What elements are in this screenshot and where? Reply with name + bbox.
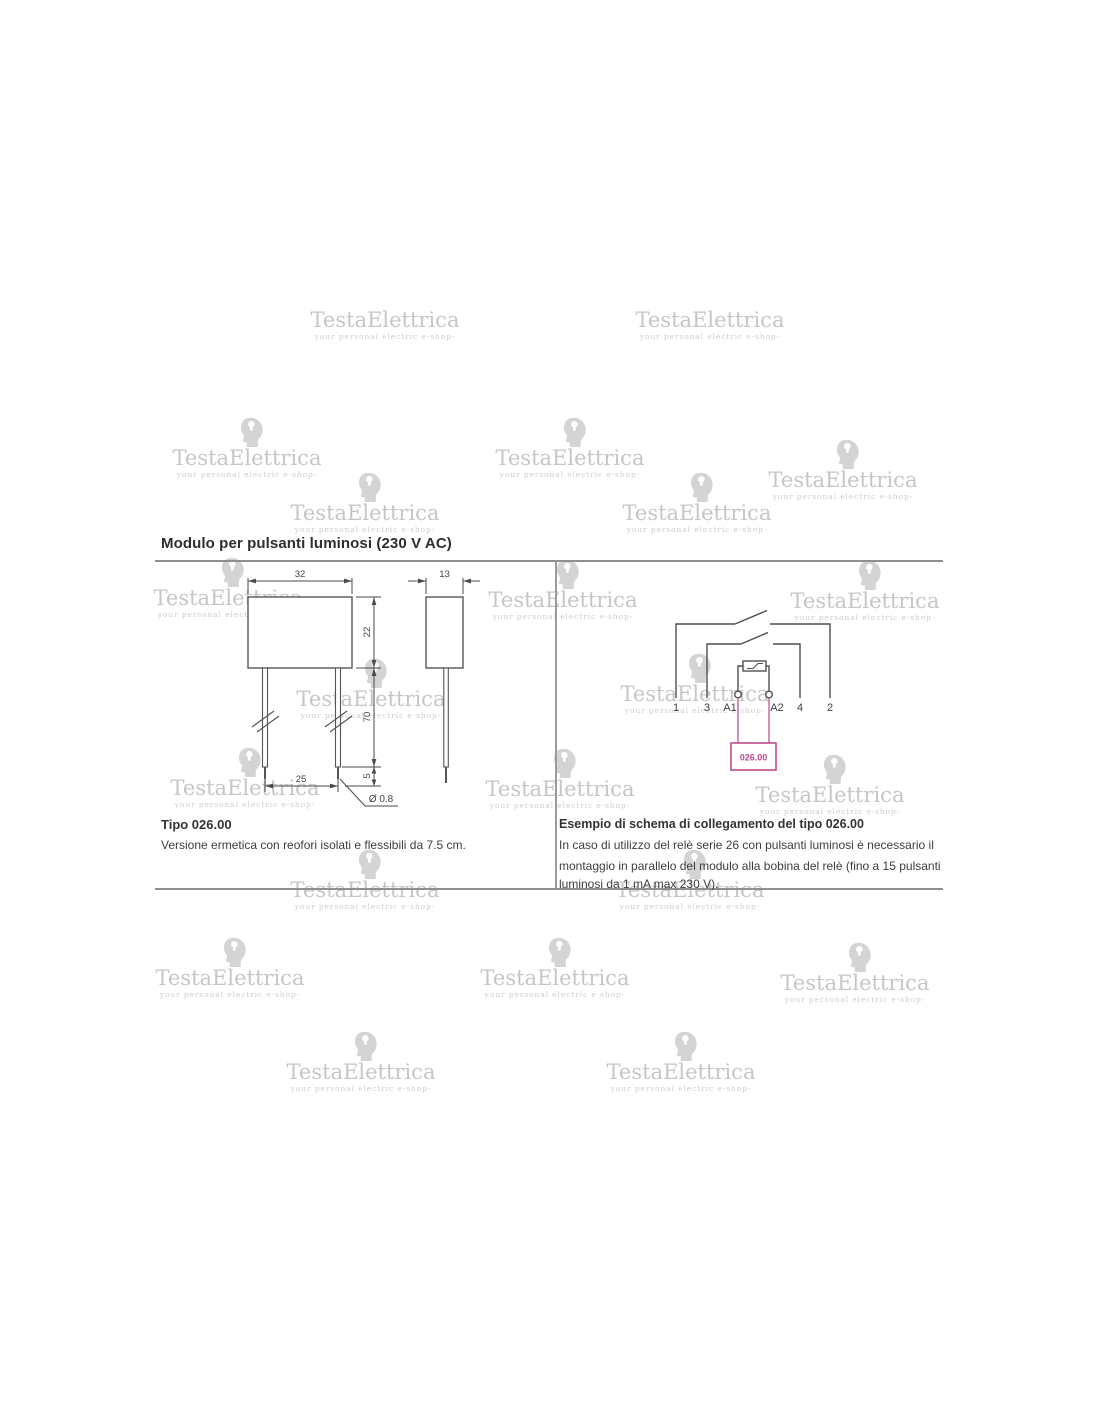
example-heading: Esempio di schema di collegamento del ti…	[559, 817, 864, 831]
switch-blade	[741, 633, 768, 645]
module-body-side	[426, 597, 463, 668]
watermark-brand: TestaElettrica	[496, 447, 645, 469]
watermark: TestaElettricayour personal electric e-s…	[486, 748, 635, 812]
terminal-circle-a2	[766, 691, 773, 698]
watermark-brand: TestaElettrica	[623, 502, 772, 524]
watermark: TestaElettricayour personal electric e-s…	[173, 417, 322, 481]
watermark: TestaElettricayour personal electric e-s…	[496, 417, 645, 481]
watermark: TestaElettricayour personal electric e-s…	[636, 309, 785, 343]
head-logo-icon	[178, 417, 327, 447]
terminal-labels: 1 3 A1 A2 4 2	[673, 702, 833, 714]
watermark-tagline: your personal electric e-shop-	[291, 901, 440, 913]
arrow-up-icon	[372, 668, 377, 676]
arrow-right-icon	[330, 784, 338, 789]
example-text-line: montaggio in parallelo del modulo alla b…	[559, 859, 941, 873]
top-rule	[155, 560, 943, 562]
dim-32	[248, 578, 352, 594]
watermark-tagline: your personal electric e-shop-	[623, 524, 772, 536]
head-logo-icon	[501, 417, 650, 447]
arrow-left-icon	[248, 579, 256, 584]
terminal-a1: A1	[723, 702, 736, 714]
head-logo-icon	[486, 937, 635, 967]
watermark-tagline: your personal electric e-shop-	[489, 611, 638, 623]
module-026: 026.00	[731, 698, 776, 770]
page: { "watermark": { "brand": "TestaElettric…	[0, 0, 1100, 1422]
watermark-tagline: your personal electric e-shop-	[481, 989, 630, 1001]
terminal-circle-a1	[735, 691, 742, 698]
type-description: Versione ermetica con reofori isolati e …	[161, 838, 466, 852]
watermark: TestaElettricayour personal electric e-s…	[489, 559, 638, 623]
wire-diameter-label: Ø 0.8	[369, 794, 394, 805]
watermark-tagline: your personal electric e-shop-	[616, 901, 765, 913]
dim-70-label: 70	[362, 712, 373, 723]
head-logo-icon	[296, 472, 445, 502]
terminal-3: 3	[704, 702, 710, 714]
arrow-down-icon	[372, 759, 377, 767]
watermark: TestaElettricayour personal electric e-s…	[291, 472, 440, 536]
dim-22-label: 22	[362, 627, 373, 638]
arrow-right-icon	[344, 579, 352, 584]
example-text-line: luminosi da 1 mA max 230 V).	[559, 877, 718, 891]
watermark-tagline: your personal electric e-shop-	[173, 469, 322, 481]
arrow-up-icon	[372, 767, 377, 774]
watermark-tagline: your personal electric e-shop-	[496, 469, 645, 481]
lead-side	[444, 668, 449, 767]
arrow-right-icon	[418, 579, 426, 584]
watermark-brand: TestaElettrica	[311, 309, 460, 331]
head-logo-icon	[491, 748, 640, 778]
module-symbol	[743, 661, 766, 671]
terminal-a2: A2	[770, 702, 783, 714]
watermark-tagline: your personal electric e-shop-	[607, 1083, 756, 1095]
arrow-left-icon	[463, 579, 471, 584]
dim-5-label: 5	[362, 773, 373, 778]
page-title: Modulo per pulsanti luminosi (230 V AC)	[161, 535, 452, 552]
watermark: TestaElettricayour personal electric e-s…	[156, 937, 305, 1001]
watermark: TestaElettricayour personal electric e-s…	[607, 1031, 756, 1095]
wiring-schematic: 1 3 A1 A2 4 2 026.00	[620, 580, 950, 810]
watermark-brand: TestaElettrica	[769, 469, 918, 491]
head-logo-icon	[161, 937, 310, 967]
watermark-brand: TestaElettrica	[481, 967, 630, 989]
head-logo-icon	[612, 1031, 761, 1061]
contact-1-2	[676, 611, 830, 699]
watermark-tagline: your personal electric e-shop-	[486, 800, 635, 812]
watermark-brand: TestaElettrica	[486, 778, 635, 800]
type-label: Tipo 026.00	[161, 817, 232, 832]
head-logo-icon	[786, 942, 935, 972]
watermark-tagline: your personal electric e-shop-	[287, 1083, 436, 1095]
watermark-brand: TestaElettrica	[781, 972, 930, 994]
front-view	[248, 597, 352, 767]
watermark-brand: TestaElettrica	[287, 1061, 436, 1083]
head-logo-icon	[774, 439, 923, 469]
dim-13-label: 13	[439, 569, 450, 580]
arrow-up-icon	[372, 597, 377, 605]
watermark-brand: TestaElettrica	[607, 1061, 756, 1083]
side-view	[426, 597, 463, 767]
watermark-tagline: your personal electric e-shop-	[769, 491, 918, 503]
dim-32-label: 32	[295, 569, 306, 580]
watermark: TestaElettricayour personal electric e-s…	[623, 472, 772, 536]
watermark: TestaElettricayour personal electric e-s…	[291, 849, 440, 913]
watermark: TestaElettricayour personal electric e-s…	[769, 439, 918, 503]
watermark-brand: TestaElettrica	[291, 879, 440, 901]
example-text-line: In caso di utilizzo del relè serie 26 co…	[559, 838, 934, 852]
panel-divider	[555, 561, 557, 889]
watermark: TestaElettricayour personal electric e-s…	[287, 1031, 436, 1095]
watermark-brand: TestaElettrica	[291, 502, 440, 524]
arrow-down-icon	[372, 780, 377, 787]
watermark-brand: TestaElettrica	[489, 589, 638, 611]
watermark-tagline: your personal electric e-shop-	[636, 331, 785, 343]
watermark: TestaElettricayour personal electric e-s…	[481, 937, 630, 1001]
watermark-tagline: your personal electric e-shop-	[311, 331, 460, 343]
terminal-1: 1	[673, 702, 679, 714]
head-logo-icon	[628, 472, 777, 502]
terminal-2: 2	[827, 702, 833, 714]
coil-branch	[735, 661, 773, 698]
bottom-rule	[155, 888, 943, 890]
watermark-brand: TestaElettrica	[173, 447, 322, 469]
switch-blade	[735, 611, 767, 625]
watermark-tagline: your personal electric e-shop-	[781, 994, 930, 1006]
module-body-front	[248, 597, 352, 668]
dim-25-label: 25	[296, 774, 307, 785]
dimension-drawing: 32 13 22 70 5 25 Ø 0.8	[150, 565, 480, 820]
head-logo-icon	[296, 849, 445, 879]
watermark-brand: TestaElettrica	[636, 309, 785, 331]
arrow-down-icon	[372, 660, 377, 668]
arrow-left-icon	[265, 784, 273, 789]
watermark-tagline: your personal electric e-shop-	[156, 989, 305, 1001]
watermark-brand: TestaElettrica	[156, 967, 305, 989]
terminal-4: 4	[797, 702, 803, 714]
watermark: TestaElettricayour personal electric e-s…	[311, 309, 460, 343]
module-026-label: 026.00	[740, 753, 768, 763]
head-logo-icon	[292, 1031, 441, 1061]
watermark: TestaElettricayour personal electric e-s…	[781, 942, 930, 1006]
